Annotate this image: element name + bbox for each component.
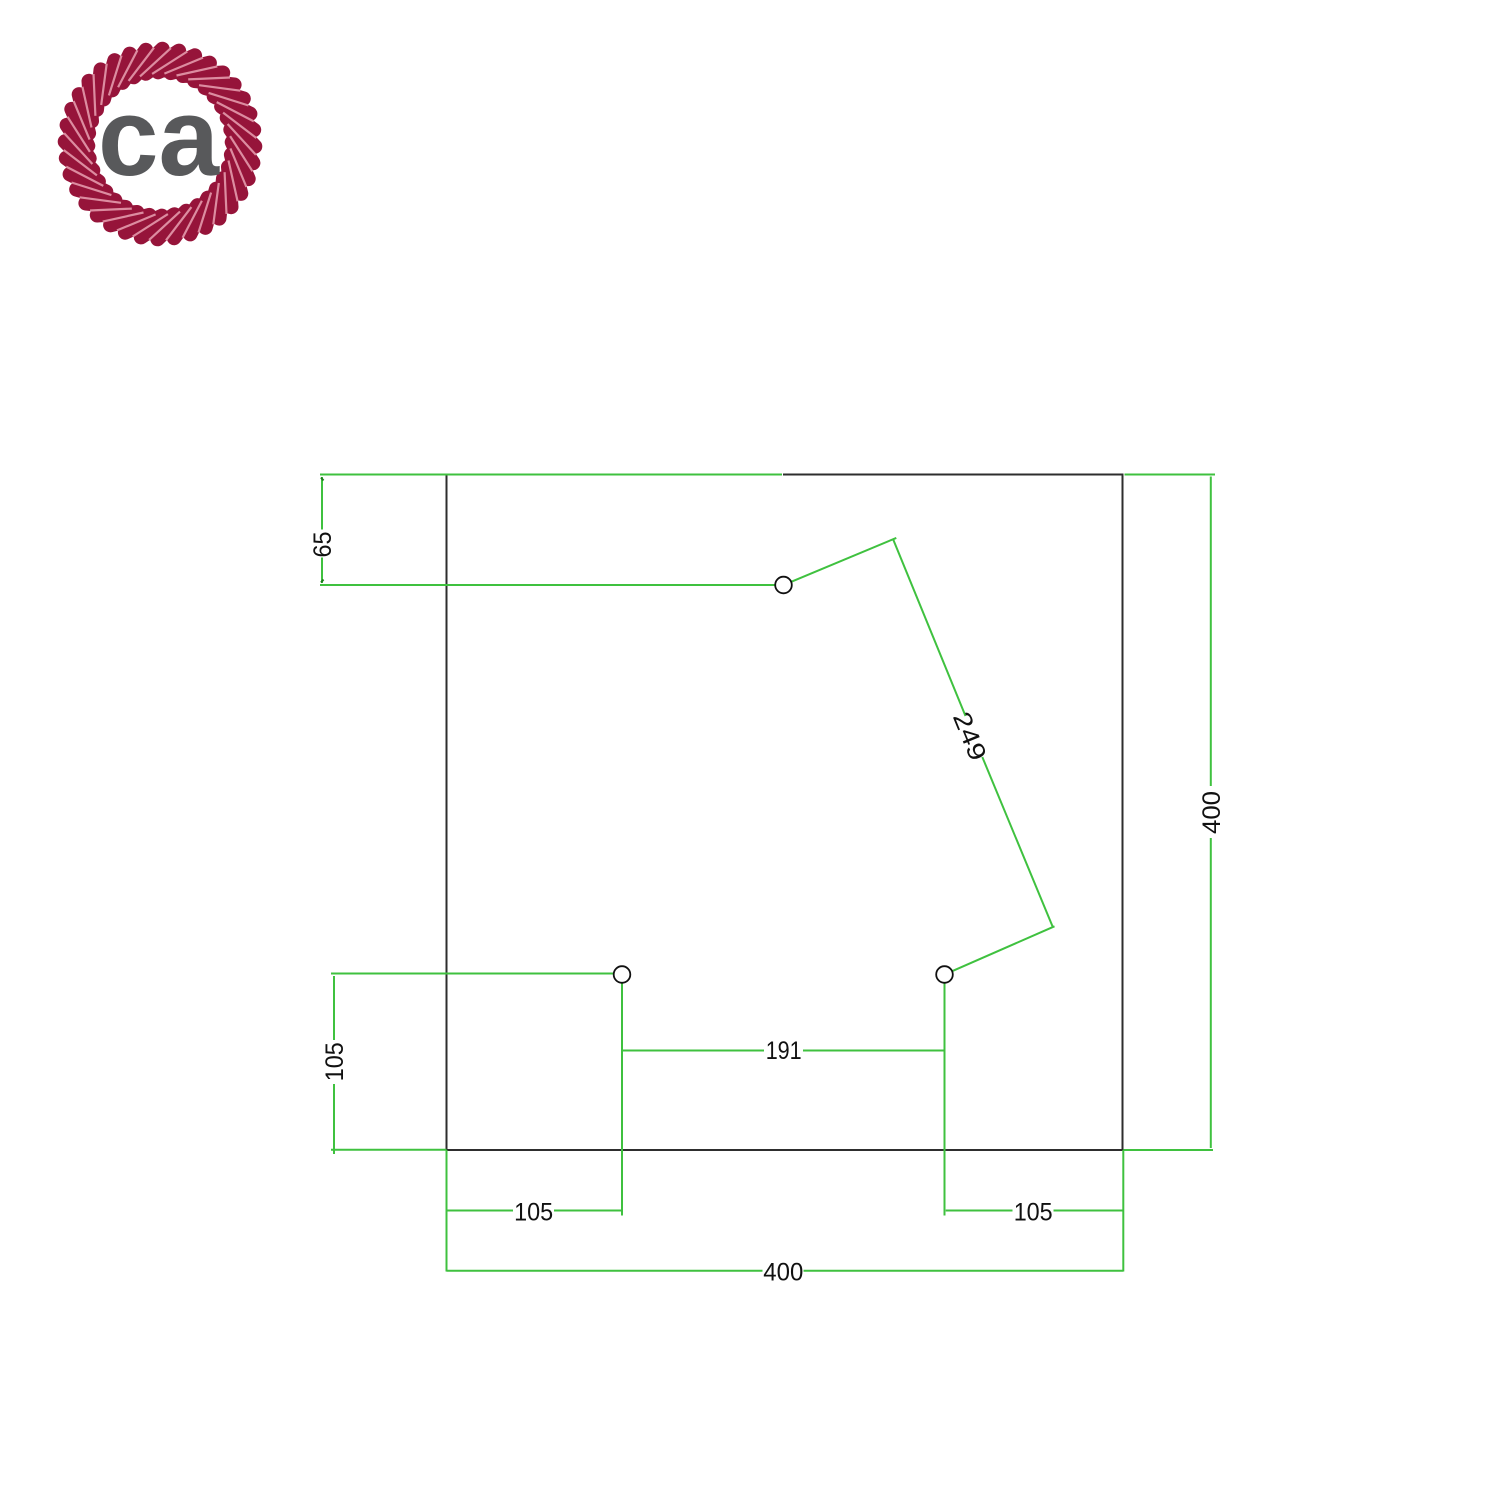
svg-text:ca: ca — [98, 76, 220, 199]
svg-text:191: 191 — [766, 1037, 802, 1065]
svg-text:65: 65 — [309, 532, 337, 558]
svg-text:105: 105 — [1014, 1199, 1053, 1227]
svg-text:400: 400 — [1198, 791, 1226, 834]
svg-text:105: 105 — [321, 1042, 349, 1081]
svg-text:105: 105 — [514, 1199, 553, 1227]
svg-text:400: 400 — [763, 1258, 803, 1286]
